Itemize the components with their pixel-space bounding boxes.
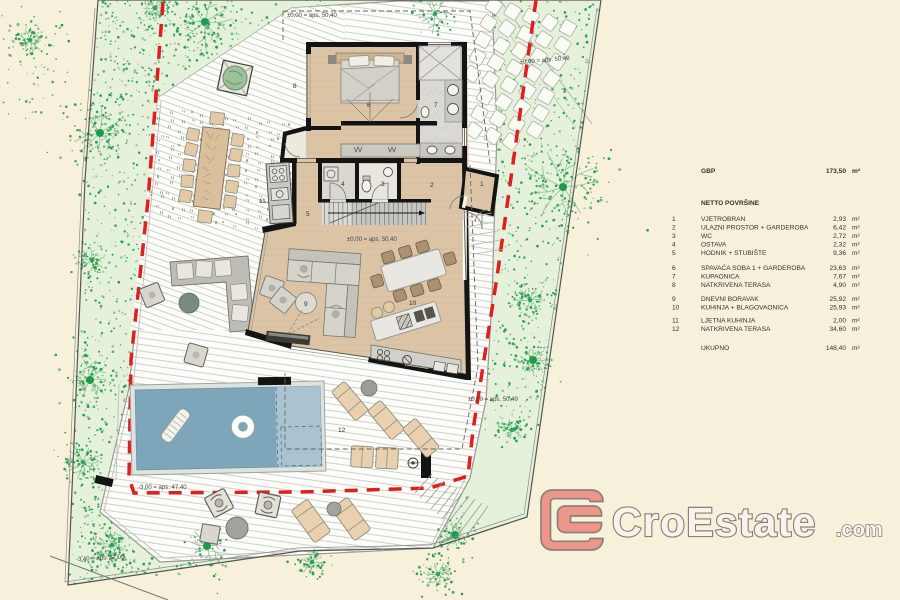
svg-text:2,32: 2,32: [833, 242, 846, 249]
svg-text:m²: m²: [852, 233, 860, 240]
svg-text:3: 3: [381, 181, 385, 188]
svg-text:m²: m²: [852, 345, 860, 352]
svg-text:±0,00 = aps. 50,40: ±0,00 = aps. 50,40: [347, 237, 397, 243]
svg-text:7: 7: [672, 274, 676, 281]
svg-text:m²: m²: [852, 250, 860, 257]
svg-text:9: 9: [304, 301, 308, 308]
svg-text:NETTO POVRŠINE: NETTO POVRŠINE: [701, 198, 760, 207]
svg-text:10: 10: [672, 305, 680, 312]
svg-text:m²: m²: [852, 168, 861, 175]
svg-text:10: 10: [409, 300, 417, 307]
svg-text:2,72: 2,72: [833, 233, 846, 240]
svg-text:KUPAONICA: KUPAONICA: [701, 274, 740, 281]
svg-text:m²: m²: [852, 216, 860, 223]
svg-text:1: 1: [672, 216, 676, 223]
svg-text:148,40: 148,40: [826, 345, 847, 352]
svg-text:7: 7: [434, 102, 438, 109]
svg-text:2,93: 2,93: [833, 216, 846, 223]
svg-text:m²: m²: [852, 296, 860, 303]
svg-text:6: 6: [672, 265, 676, 272]
svg-text:.com: .com: [836, 519, 883, 541]
svg-text:CroEstate: CroEstate: [612, 499, 816, 545]
svg-text:8: 8: [672, 282, 676, 289]
svg-text:m²: m²: [852, 242, 860, 249]
svg-text:25,93: 25,93: [829, 305, 846, 312]
svg-text:6,42: 6,42: [833, 225, 846, 232]
svg-text:7,67: 7,67: [833, 274, 846, 281]
svg-text:±0,00 = aps. 50,40: ±0,00 = aps. 50,40: [287, 13, 337, 19]
svg-text:11: 11: [259, 198, 266, 205]
svg-text:m²: m²: [852, 282, 860, 289]
svg-text:34,60: 34,60: [829, 326, 846, 333]
svg-text:m²: m²: [852, 305, 860, 312]
svg-text:DNEVNI BORAVAK: DNEVNI BORAVAK: [701, 296, 759, 303]
svg-text:5: 5: [672, 250, 676, 257]
svg-text:HODNIK + STUBIŠTE: HODNIK + STUBIŠTE: [701, 248, 767, 257]
svg-text:m²: m²: [852, 225, 860, 232]
svg-text:2: 2: [430, 182, 434, 189]
svg-text:173,50: 173,50: [826, 168, 847, 175]
svg-text:-3,00 = aps. 47,40: -3,00 = aps. 47,40: [138, 485, 187, 491]
svg-text:11: 11: [672, 318, 679, 325]
svg-text:m²: m²: [852, 326, 860, 333]
svg-text:5: 5: [306, 211, 310, 218]
svg-text:±0,00 = aps. 50,40: ±0,00 = aps. 50,40: [468, 397, 518, 403]
svg-text:12: 12: [338, 427, 346, 434]
svg-text:23,63: 23,63: [829, 265, 846, 272]
svg-text:9,36: 9,36: [833, 250, 846, 257]
svg-text:VJETROBRAN: VJETROBRAN: [701, 216, 746, 223]
svg-text:UKUPNO: UKUPNO: [701, 345, 729, 352]
svg-text:m²: m²: [852, 265, 860, 272]
svg-text:9: 9: [672, 296, 676, 303]
svg-text:ULAZNI PROSTOR + GARDEROBA: ULAZNI PROSTOR + GARDEROBA: [701, 225, 809, 232]
svg-text:m²: m²: [852, 318, 860, 325]
svg-text:m²: m²: [852, 274, 860, 281]
svg-text:KUHINJA + BLAGOVAONICA: KUHINJA + BLAGOVAONICA: [701, 305, 789, 312]
svg-text:NATKRIVENA TERASA: NATKRIVENA TERASA: [701, 326, 771, 333]
svg-text:4: 4: [341, 181, 345, 188]
svg-text:SPAVAĆA SOBA 1 + GARDEROBA: SPAVAĆA SOBA 1 + GARDEROBA: [701, 263, 806, 272]
svg-text:25,92: 25,92: [829, 296, 846, 303]
svg-text:6: 6: [367, 102, 371, 109]
svg-text:OSTAVA: OSTAVA: [701, 242, 727, 249]
svg-text:1: 1: [480, 181, 484, 188]
svg-text:LJETNA KUHINJA: LJETNA KUHINJA: [701, 318, 756, 325]
svg-text:4: 4: [672, 242, 676, 249]
svg-text:3: 3: [672, 233, 676, 240]
svg-text:WC: WC: [701, 233, 712, 240]
svg-text:2,00: 2,00: [833, 318, 846, 325]
svg-text:4,90: 4,90: [833, 282, 846, 289]
svg-text:8: 8: [293, 83, 297, 90]
svg-text:2: 2: [672, 225, 676, 232]
svg-text:GBP: GBP: [701, 168, 716, 175]
svg-text:NATKRIVENA TERASA: NATKRIVENA TERASA: [701, 282, 771, 289]
svg-text:12: 12: [672, 326, 680, 333]
